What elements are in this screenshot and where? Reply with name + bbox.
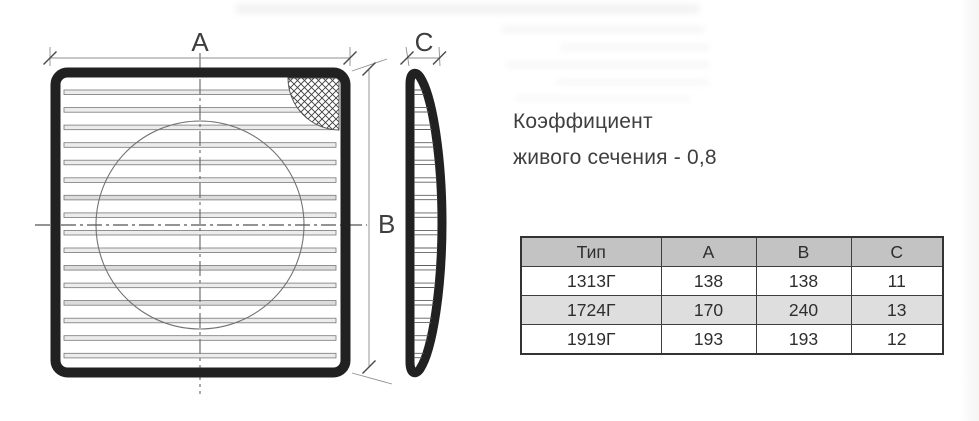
dim-a-label: A (191, 27, 209, 57)
table-header-type: Тип (521, 237, 661, 267)
side-view (410, 73, 442, 373)
dim-b-label: B (378, 209, 395, 239)
scan-smudge (515, 95, 690, 102)
scanned-catalog-page: A B C (0, 0, 979, 421)
table-cell-type: 1313Г (521, 267, 661, 296)
scan-smudge (500, 26, 705, 33)
table-cell-a: 193 (661, 325, 756, 355)
table-header-c: C (851, 237, 943, 267)
table-row: 1724Г 170 240 13 (521, 296, 943, 325)
table-cell-b: 240 (756, 296, 851, 325)
scan-smudge (555, 79, 710, 86)
table-cell-a: 138 (661, 267, 756, 296)
table-cell-b: 193 (756, 325, 851, 355)
table-row: 1919Г 193 193 12 (521, 325, 943, 355)
page-edge-shadow (959, 0, 979, 421)
table-cell-c: 11 (851, 267, 943, 296)
front-view (35, 53, 367, 394)
table-cell-type: 1724Г (521, 296, 661, 325)
table-cell-c: 13 (851, 296, 943, 325)
table-cell-b: 138 (756, 267, 851, 296)
side-view-profile (410, 73, 442, 373)
dimension-c: C (401, 27, 447, 66)
scan-smudge (560, 44, 710, 51)
free-area-note: Коэффициент живого сечения - 0,8 (513, 104, 717, 176)
table-cell-c: 12 (851, 325, 943, 355)
note-line-2: живого сечения - 0,8 (513, 140, 717, 176)
dim-c-label: C (415, 27, 434, 57)
table-header-row: Тип A B C (521, 237, 943, 267)
table-header-a: A (661, 237, 756, 267)
dimensions-table: Тип A B C 1313Г 138 138 11 1724Г 170 240… (520, 236, 944, 355)
table-header-b: B (756, 237, 851, 267)
table-row: 1313Г 138 138 11 (521, 267, 943, 296)
scan-smudge (505, 61, 710, 68)
dimension-b: B (352, 59, 395, 384)
table-cell-type: 1919Г (521, 325, 661, 355)
note-line-1: Коэффициент (513, 104, 717, 140)
table-cell-a: 170 (661, 296, 756, 325)
grille-technical-drawing: A B C (0, 0, 500, 421)
